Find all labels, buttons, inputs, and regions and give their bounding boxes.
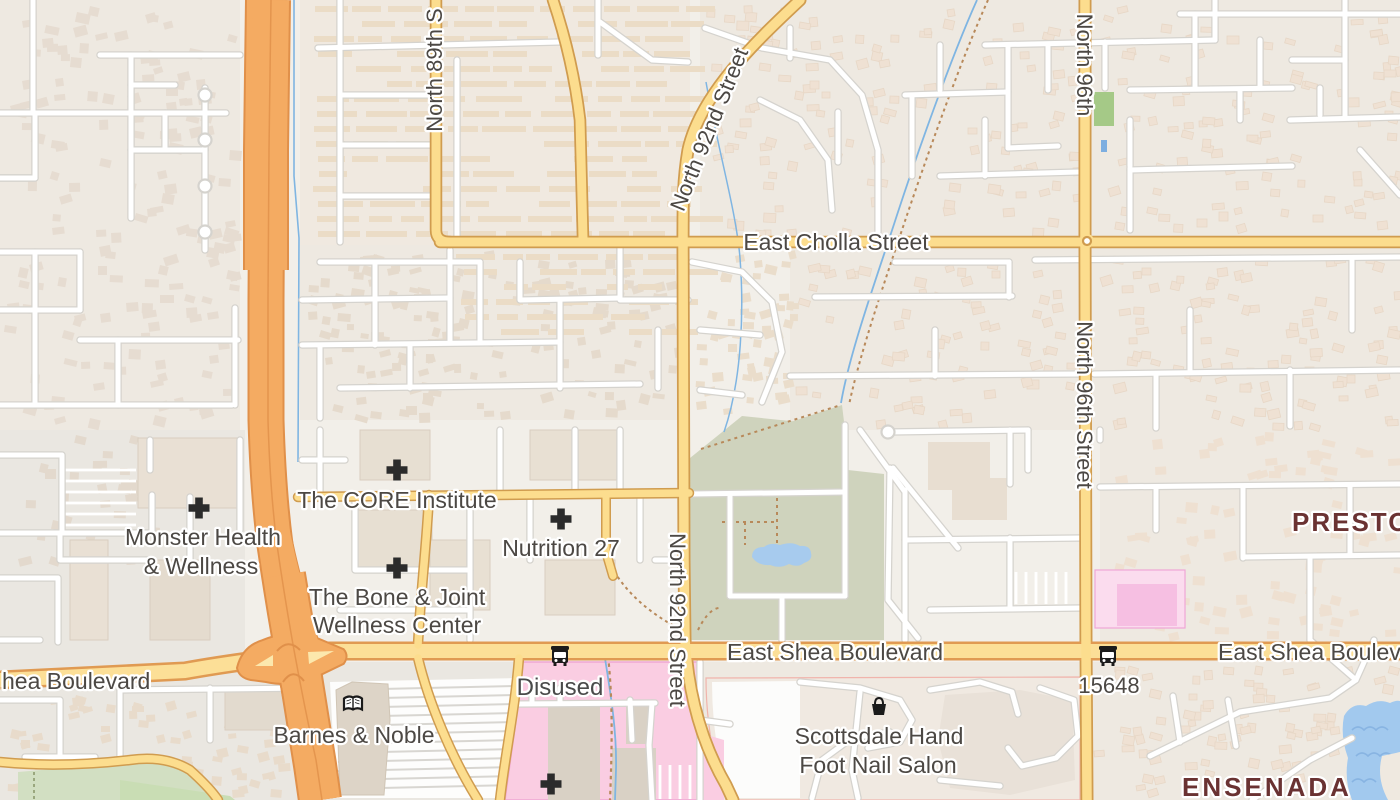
svg-text:Foot Nail Salon: Foot Nail Salon (799, 752, 956, 778)
svg-text:East Shea Boulevard: East Shea Boulevard (1218, 639, 1400, 665)
svg-text:Disused: Disused (517, 674, 604, 701)
svg-text:Monster Health: Monster Health (125, 524, 281, 550)
svg-text:PRESTON: PRESTON (1292, 507, 1400, 537)
svg-text:& Wellness: & Wellness (144, 553, 259, 579)
svg-text:hea Boulevard: hea Boulevard (2, 668, 150, 694)
svg-text:The Bone & Joint: The Bone & Joint (309, 584, 486, 610)
svg-text:15648: 15648 (1078, 673, 1139, 698)
svg-text:Nutrition 27: Nutrition 27 (502, 535, 620, 561)
svg-text:ENSENADA: ENSENADA (1182, 772, 1352, 800)
svg-text:Wellness Center: Wellness Center (313, 612, 482, 638)
svg-text:North 96th: North 96th (1072, 14, 1097, 117)
svg-text:East Cholla Street: East Cholla Street (743, 229, 929, 255)
svg-text:North 96th Street: North 96th Street (1072, 321, 1097, 489)
svg-text:East Shea Boulevard: East Shea Boulevard (727, 639, 943, 665)
svg-text:North 89th S: North 89th S (422, 8, 447, 132)
svg-text:The CORE Institute: The CORE Institute (297, 487, 496, 513)
svg-text:North 92nd Street: North 92nd Street (665, 533, 690, 707)
svg-text:Barnes & Noble: Barnes & Noble (273, 722, 434, 748)
svg-text:Scottsdale Hand: Scottsdale Hand (795, 723, 964, 749)
